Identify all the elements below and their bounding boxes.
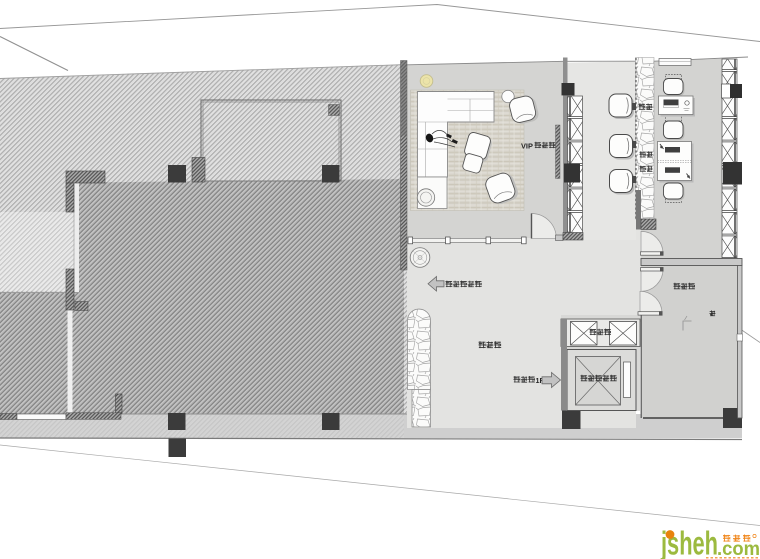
svg-text:VIP: VIP xyxy=(521,142,533,151)
svg-text:jsheh: jsheh xyxy=(660,525,718,559)
svg-text:.com: .com xyxy=(717,539,760,559)
